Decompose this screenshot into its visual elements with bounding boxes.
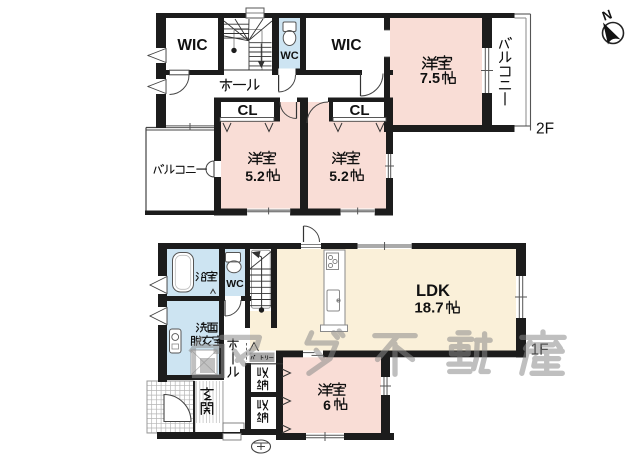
svg-text:7.5: 7.5 — [420, 71, 440, 87]
svg-text:CL: CL — [350, 102, 370, 119]
svg-text:2F: 2F — [536, 121, 554, 138]
svg-text:5.2: 5.2 — [329, 168, 349, 184]
svg-text:5.2: 5.2 — [245, 168, 265, 184]
svg-text:CL: CL — [238, 102, 258, 119]
svg-text:WIC: WIC — [331, 37, 361, 54]
svg-text:18.7: 18.7 — [414, 300, 443, 317]
svg-text:6: 6 — [323, 397, 331, 413]
svg-text:LDK: LDK — [416, 282, 450, 300]
svg-text:WC: WC — [280, 50, 298, 62]
svg-text:WC: WC — [226, 278, 244, 290]
svg-text:WIC: WIC — [177, 37, 207, 54]
